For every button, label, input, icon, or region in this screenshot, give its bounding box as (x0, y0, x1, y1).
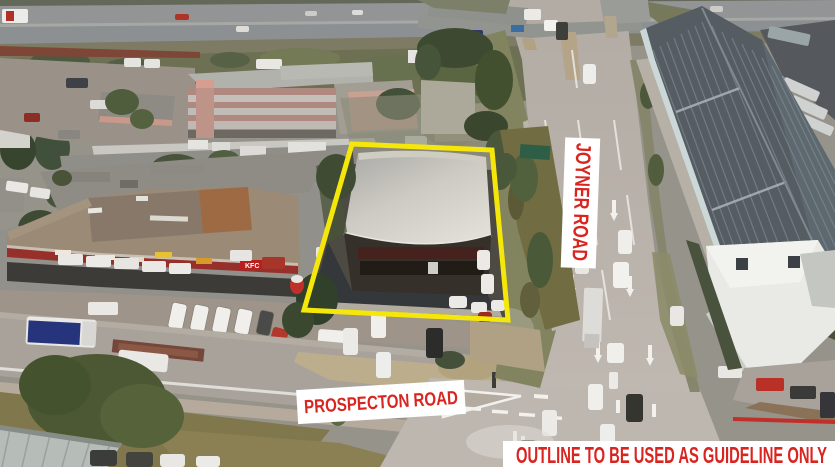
svg-text:OUTLINE TO BE USED AS GUIDELIN: OUTLINE TO BE USED AS GUIDELINE ONLY (516, 442, 827, 467)
svg-text:KFC: KFC (245, 263, 259, 270)
svg-text:JOYNER ROAD: JOYNER ROAD (567, 143, 594, 262)
